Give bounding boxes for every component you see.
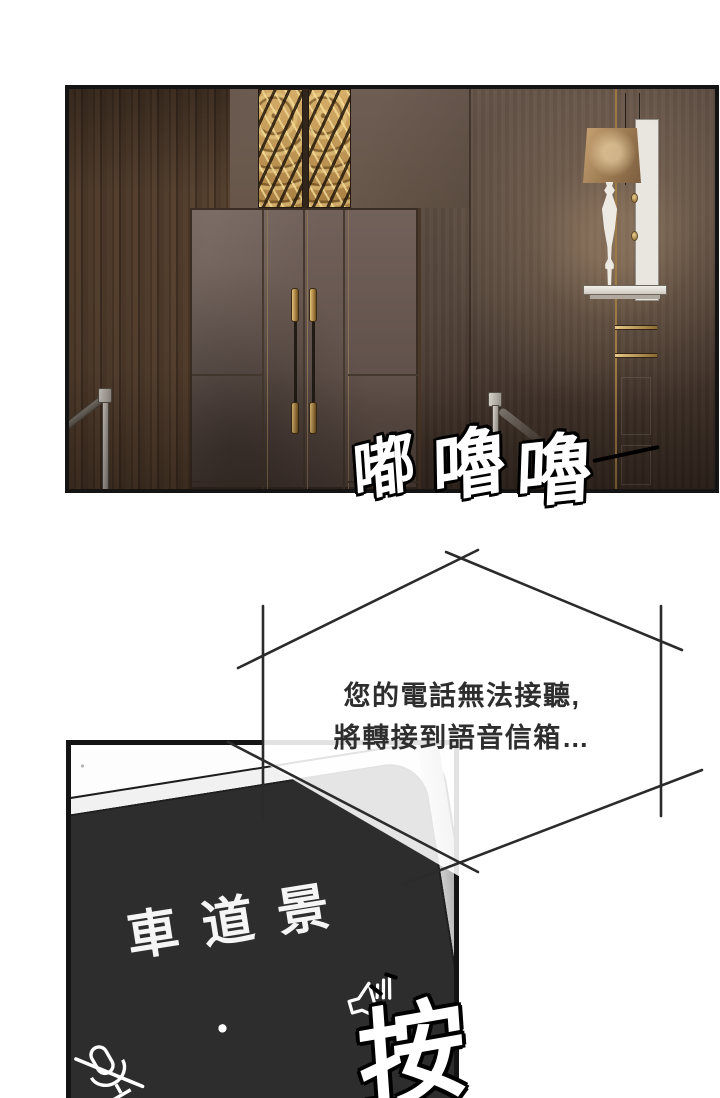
sfx-ring-char: 嚕: [515, 430, 593, 515]
keypad-dots-icon: [218, 1016, 273, 1071]
bubble-text-line1: 您的電話無法接聽,: [242, 674, 682, 713]
comic-page: 嘟 嚕 嚕 車道景: [0, 0, 720, 1098]
sfx-ring-char: 嘟: [351, 428, 418, 508]
phone-earpiece: [81, 761, 103, 768]
sfx-press-text: 按: [355, 992, 469, 1098]
sfx-ring-char: 嚕: [432, 421, 506, 509]
bubble-text-line2: 將轉接到語音信箱…: [242, 716, 682, 755]
